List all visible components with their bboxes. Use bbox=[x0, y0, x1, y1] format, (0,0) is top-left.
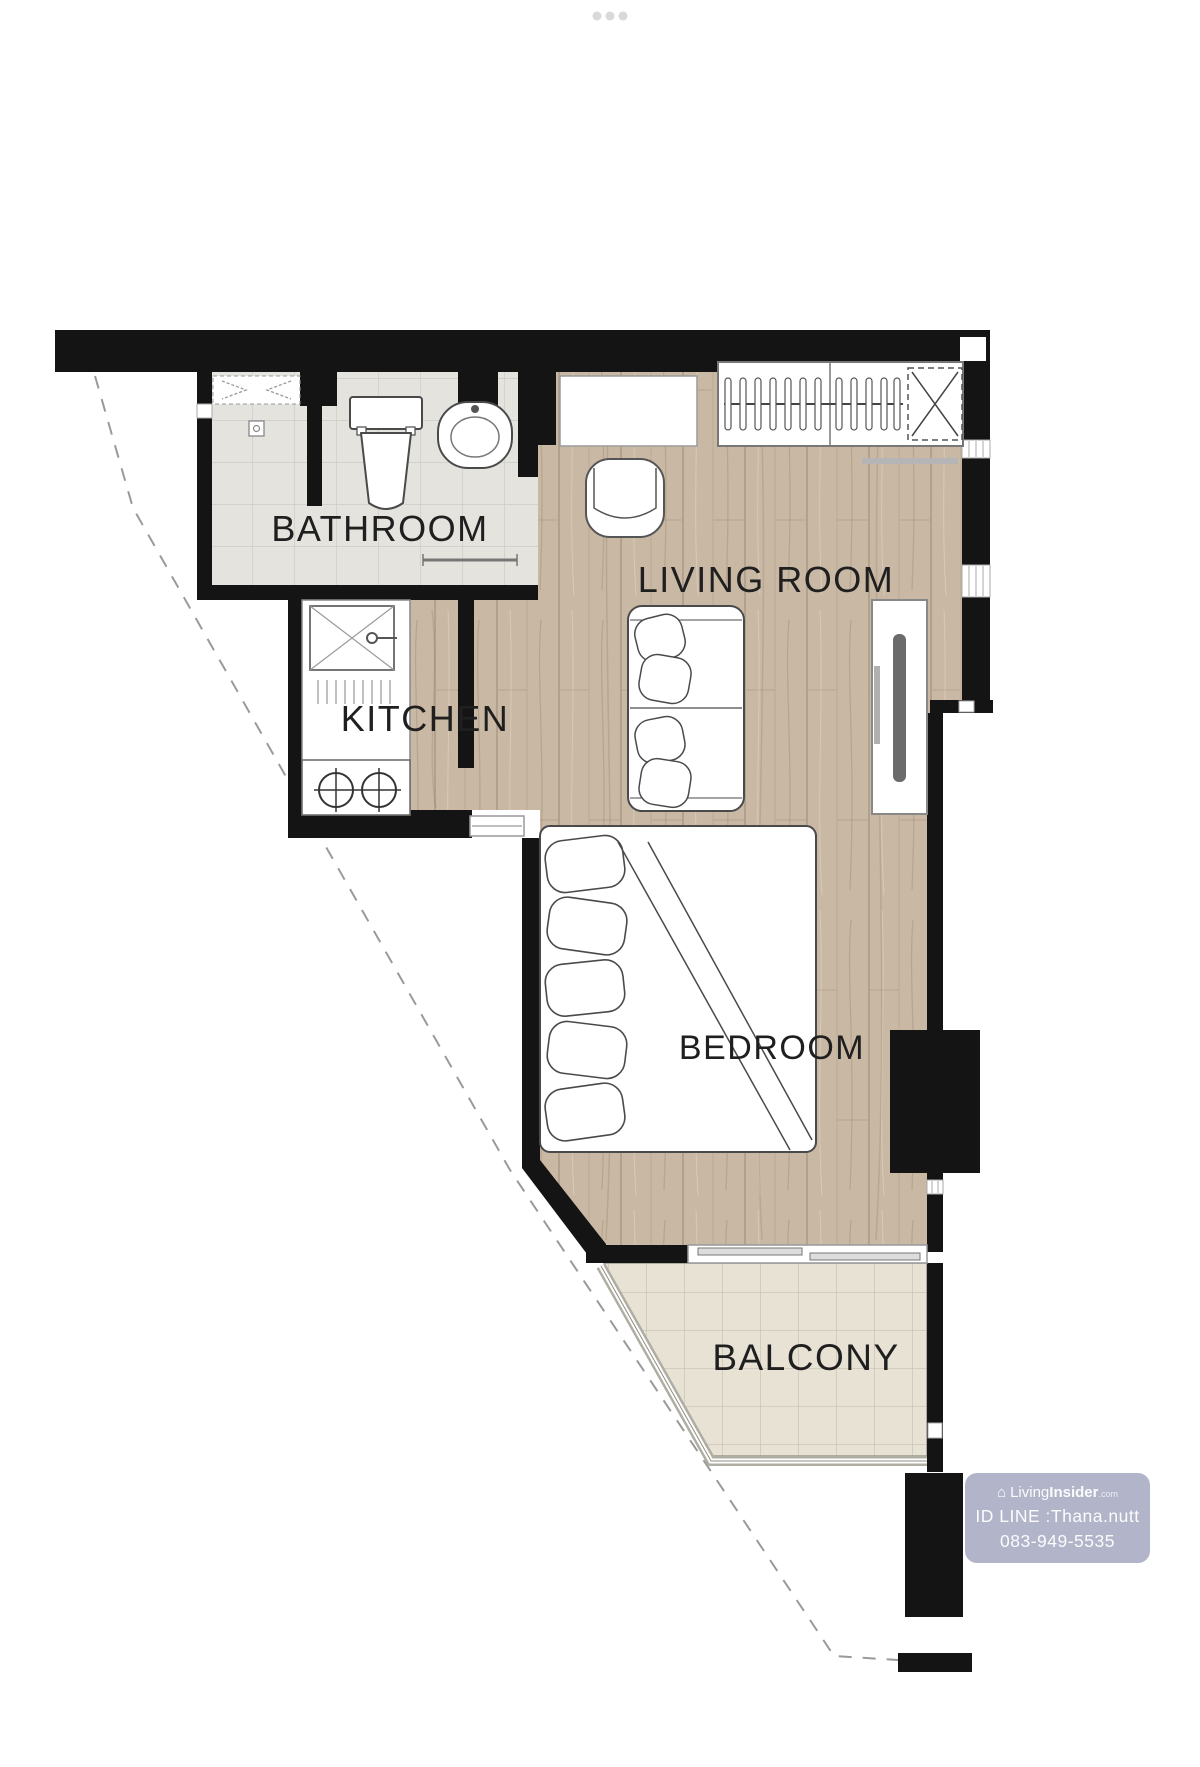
brand-living: Living bbox=[1010, 1484, 1049, 1501]
balcony-door-wall-segment bbox=[597, 1245, 690, 1263]
bathroom-left-wall bbox=[197, 372, 212, 404]
lower-column bbox=[905, 1473, 963, 1617]
curtain-rail bbox=[862, 458, 958, 464]
shower-door bbox=[213, 376, 300, 404]
brand-insider: Insider bbox=[1049, 1484, 1098, 1501]
watermark-badge: ⌂ LivingInsider.com ID LINE :Thana.nutt … bbox=[965, 1473, 1150, 1563]
bed-icon bbox=[540, 826, 816, 1152]
kitchen-left-wall bbox=[288, 600, 302, 815]
kitchen-entry-rail bbox=[470, 816, 524, 836]
living-room-label: LIVING ROOM bbox=[638, 559, 895, 600]
wardrobe-icon bbox=[718, 362, 963, 446]
armchair-icon bbox=[586, 459, 664, 537]
bathroom-label: BATHROOM bbox=[271, 508, 488, 549]
floorplan-page: BATHROOM KITCHEN LIVING ROOM BEDROOM BAL… bbox=[0, 0, 1200, 1767]
brand-tld: .com bbox=[1098, 1489, 1118, 1499]
house-icon: ⌂ bbox=[997, 1482, 1006, 1504]
shower-divider-wall bbox=[307, 406, 322, 506]
balcony-sliding-door bbox=[688, 1245, 927, 1263]
sink-icon bbox=[438, 402, 512, 468]
bathroom-bottom-wall bbox=[212, 585, 538, 600]
watermark-brand: ⌂ LivingInsider.com bbox=[997, 1482, 1118, 1504]
bedroom-furniture bbox=[540, 826, 816, 1152]
bedroom-left-wall bbox=[522, 838, 540, 1168]
balcony-right-wall bbox=[927, 1263, 943, 1472]
bedroom-label: BEDROOM bbox=[679, 1029, 865, 1067]
ac-unit-icon bbox=[908, 368, 962, 440]
tv-console-icon bbox=[872, 600, 927, 814]
tv-icon bbox=[893, 634, 906, 782]
watermark-id-line: ID LINE :Thana.nutt bbox=[975, 1504, 1139, 1529]
bed-pillows bbox=[543, 833, 629, 1143]
sofa-icon bbox=[628, 606, 744, 811]
balcony-label: BALCONY bbox=[712, 1337, 899, 1378]
entry-door-mat bbox=[560, 376, 697, 446]
bedroom-column bbox=[890, 1030, 980, 1173]
carousel-dots[interactable] bbox=[593, 12, 628, 21]
right-wall-upper bbox=[962, 372, 990, 440]
floor-drain-icon bbox=[249, 421, 264, 436]
shower-divider-stub bbox=[300, 372, 337, 406]
bottom-wall-stub bbox=[898, 1653, 972, 1672]
stove-icon bbox=[302, 760, 410, 815]
kitchen-label: KITCHEN bbox=[341, 698, 510, 739]
kitchen-sink-icon bbox=[310, 606, 397, 670]
watermark-phone: 083-949-5535 bbox=[1000, 1529, 1115, 1554]
bathroom-right-wall bbox=[518, 372, 556, 445]
kitchen-right-stub-wall bbox=[458, 600, 474, 768]
